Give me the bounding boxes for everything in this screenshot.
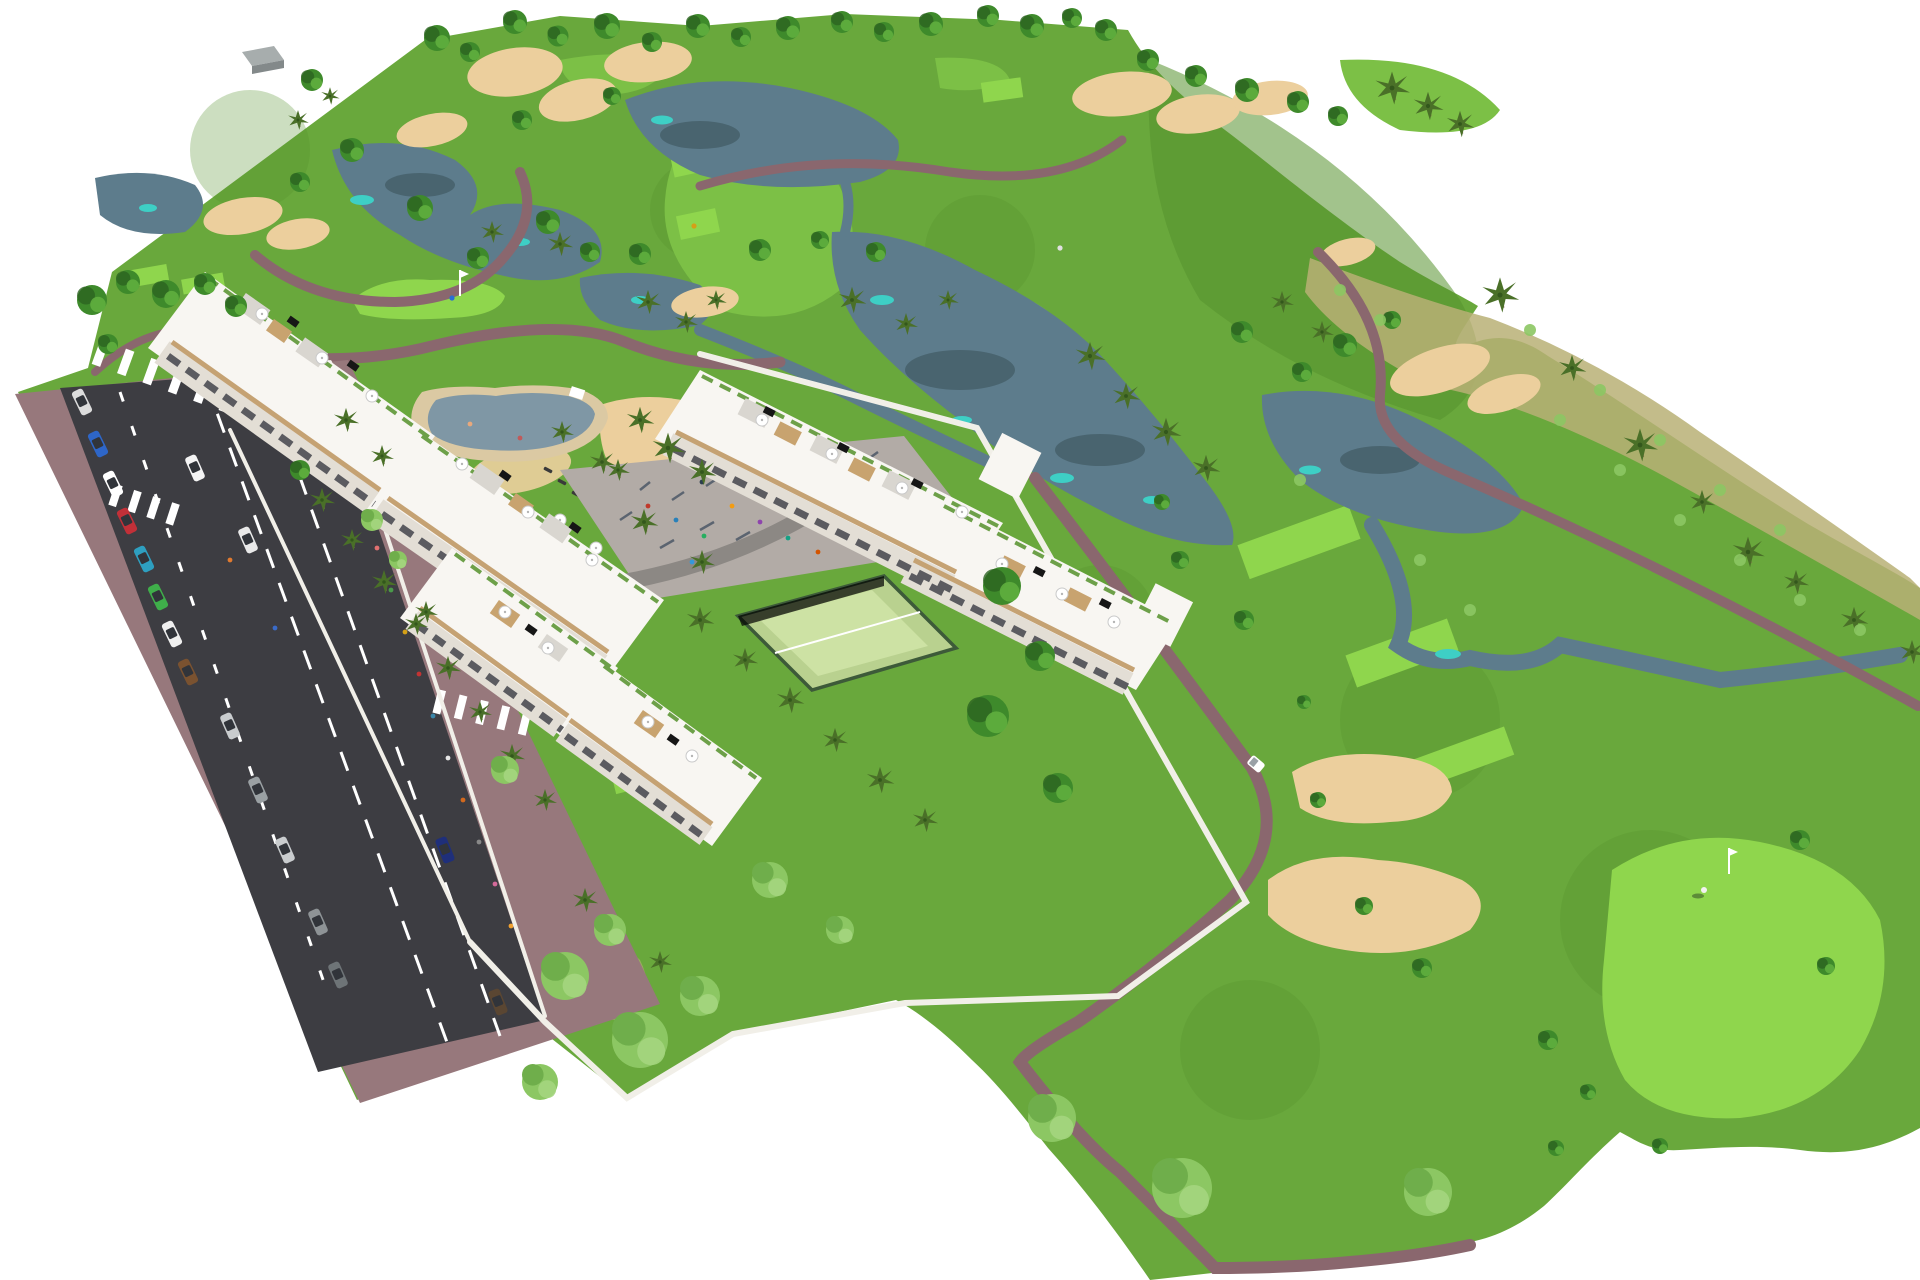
golfer [691,223,696,228]
bunker-east-upper [1292,754,1452,823]
stream-link [845,182,849,232]
swimmer [518,436,523,441]
pond-west-small [95,173,203,234]
aerial-render: Aerial rendering of golf resort apartmen… [0,0,1920,1280]
maintenance-shed [242,46,284,74]
render-canvas: Aerial rendering of golf resort apartmen… [0,0,1920,1280]
golfer [1057,245,1062,250]
swimmer [468,422,473,427]
golfer-blue [449,295,454,300]
